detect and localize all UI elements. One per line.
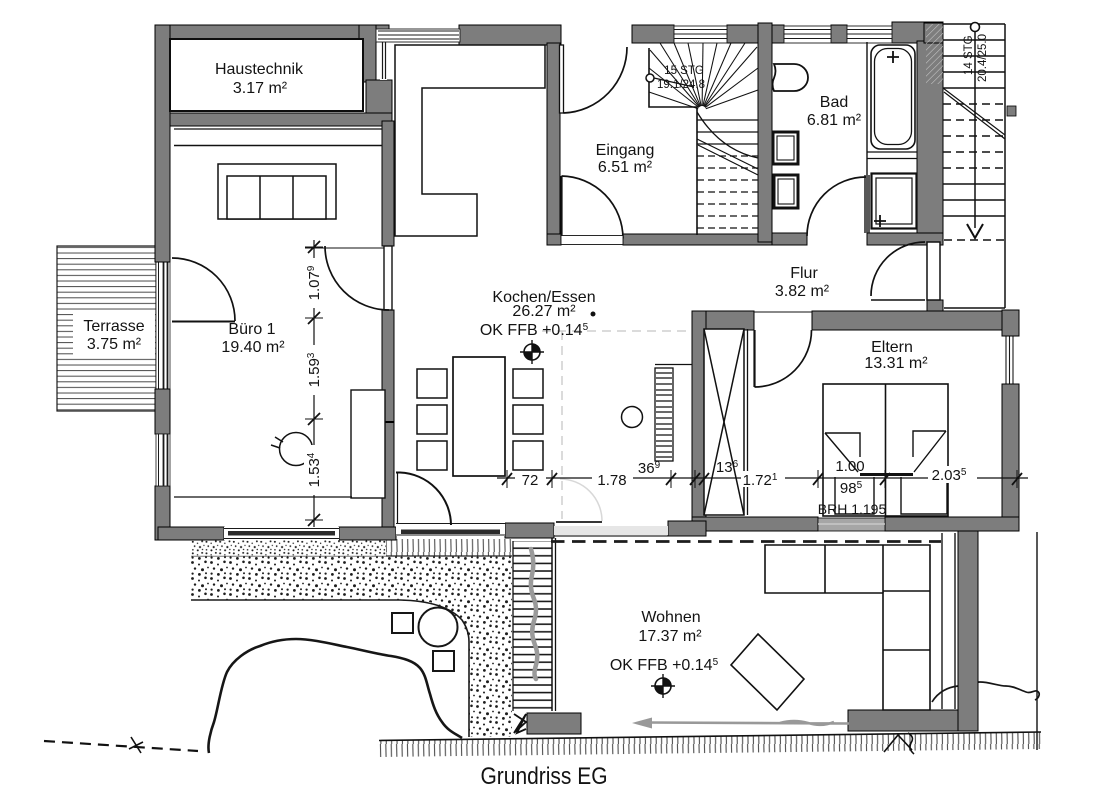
svg-text:6.51 m²: 6.51 m²	[598, 159, 653, 176]
svg-text:13.31 m²: 13.31 m²	[864, 355, 928, 372]
svg-text:26.27 m²: 26.27 m²	[512, 303, 576, 320]
svg-text:Eltern: Eltern	[871, 339, 913, 356]
svg-text:Eingang: Eingang	[596, 142, 655, 159]
svg-text:1.00: 1.00	[835, 458, 864, 475]
svg-text:Büro 1: Büro 1	[228, 321, 275, 338]
svg-text:14 STG: 14 STG	[963, 35, 975, 75]
svg-text:BRH 1.195: BRH 1.195	[818, 501, 887, 517]
svg-text:3.17 m²: 3.17 m²	[233, 80, 288, 97]
svg-text:Bad: Bad	[820, 94, 848, 111]
svg-text:Grundriss EG: Grundriss EG	[481, 763, 608, 790]
svg-text:Terrasse: Terrasse	[83, 318, 144, 335]
svg-text:19.40 m²: 19.40 m²	[221, 339, 285, 356]
svg-text:3.82 m²: 3.82 m²	[775, 283, 830, 300]
svg-text:Haustechnik: Haustechnik	[215, 61, 304, 78]
svg-text:1.78: 1.78	[597, 472, 626, 489]
svg-text:OK FFB +0.145: OK FFB +0.145	[480, 322, 589, 339]
svg-text:72: 72	[522, 472, 539, 489]
svg-text:20.4/25.0: 20.4/25.0	[977, 34, 989, 82]
svg-text:Flur: Flur	[790, 265, 818, 282]
svg-text:17.37 m²: 17.37 m²	[638, 628, 702, 645]
svg-text:15 STG: 15 STG	[664, 65, 704, 77]
svg-text:Wohnen: Wohnen	[641, 609, 700, 626]
svg-text:6.81 m²: 6.81 m²	[807, 112, 862, 129]
svg-text:19.1/24.8: 19.1/24.8	[657, 79, 705, 91]
svg-text:OK FFB +0.145: OK FFB +0.145	[610, 657, 719, 674]
svg-text:3.75 m²: 3.75 m²	[87, 336, 142, 353]
